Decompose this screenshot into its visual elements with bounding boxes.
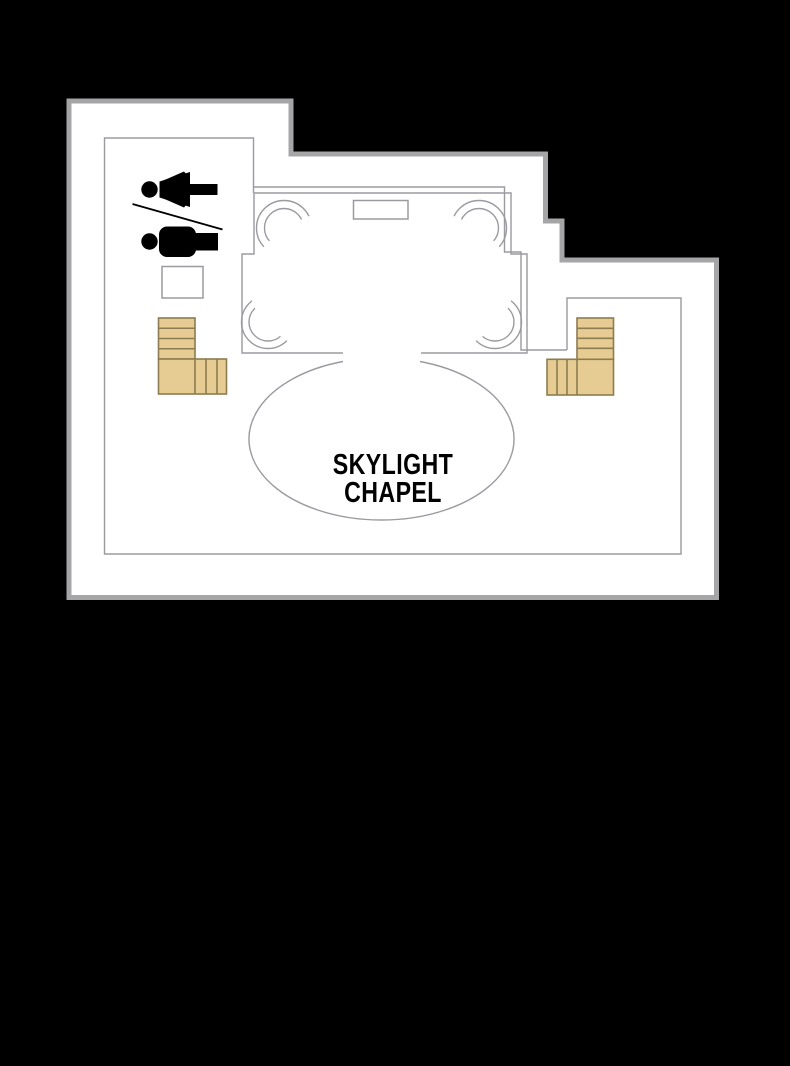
chapel-label: SKYLIGHT CHAPEL (313, 451, 473, 507)
chapel-label-line1: SKYLIGHT (313, 451, 473, 479)
deck-plan-canvas (0, 0, 790, 1066)
service-room-box (162, 267, 203, 299)
chapel-top-rectangle (354, 201, 409, 220)
chapel-label-line2: CHAPEL (313, 479, 473, 507)
deck-plan: SKYLIGHT CHAPEL (0, 0, 790, 1066)
